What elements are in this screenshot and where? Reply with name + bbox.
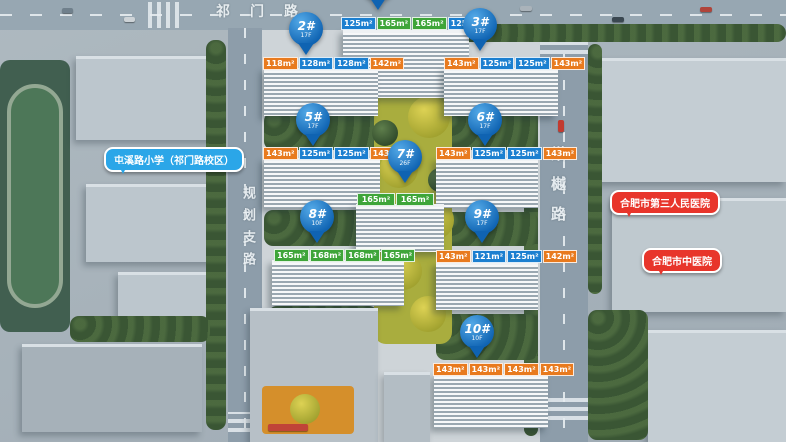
unit-area-chip: 128m² (334, 57, 369, 70)
unit-area-chip: 143m² (469, 363, 504, 376)
pin-tail-icon (477, 134, 493, 146)
unit-area-chip: 143m² (263, 147, 298, 160)
pin-head: 2# 17F (289, 12, 323, 46)
unit-chips-building-9: 143m² 121m² 125m² 142m² (436, 250, 577, 263)
pin-head: 9# 17F (465, 200, 499, 234)
school-label-bubble[interactable]: 屯溪路小学（祁门路校区） (104, 147, 244, 172)
tower-8 (272, 260, 404, 306)
unit-area-chip: 118m² (263, 57, 298, 70)
car (520, 6, 532, 11)
building-pin-10[interactable]: 10# 10F (460, 315, 494, 358)
school-building (86, 184, 226, 262)
aerial-map: 125m² 165m² 165m² 125m² 118m² 128m² 128m… (0, 0, 786, 442)
pin-label: 8# (309, 208, 326, 220)
building-pin-6[interactable]: 6# 17F (468, 103, 502, 146)
unit-area-chip: 125m² (507, 250, 542, 263)
building-pin-7[interactable]: 7# 26F (388, 140, 422, 183)
pin-tail-icon (305, 134, 321, 146)
pin-label: 6# (477, 111, 494, 123)
car (124, 17, 135, 22)
unit-area-chip: 125m² (299, 147, 334, 160)
unit-area-chip: 143m² (433, 363, 468, 376)
running-track (7, 84, 63, 308)
pin-tail-icon (370, 0, 386, 10)
pin-floors: 17F (479, 124, 490, 130)
tree-cluster (588, 310, 648, 440)
tower-7 (356, 204, 444, 252)
unit-area-chip: 165m² (357, 193, 395, 206)
yellow-tree (290, 394, 320, 424)
unit-chips-building-2: 118m² 128m² 128m² 142m² (263, 57, 404, 70)
pin-label: 10# (464, 323, 489, 335)
pin-label: 3# (472, 16, 489, 28)
unit-area-chip: 125m² (507, 147, 542, 160)
community-building (384, 372, 430, 442)
car (612, 17, 624, 22)
building-pin-3[interactable]: 3# 17F (463, 8, 497, 51)
pin-floors: 26F (399, 161, 410, 167)
unit-area-chip: 168m² (345, 249, 380, 262)
unit-area-chip: 143m² (436, 147, 471, 160)
pin-head: 8# 10F (300, 200, 334, 234)
unit-area-chip: 165m² (412, 17, 447, 30)
pin-head: 7# 26F (388, 140, 422, 174)
tree-line (70, 316, 210, 342)
unit-chips-building-10: 143m² 143m² 143m² 143m² (433, 363, 574, 376)
pin-head: 6# 17F (468, 103, 502, 137)
pin-head: 10# 10F (460, 315, 494, 349)
unit-area-chip: 125m² (480, 57, 515, 70)
unit-area-chip: 143m² (551, 57, 586, 70)
pin-tail-icon (397, 171, 413, 183)
unit-area-chip: 142m² (543, 250, 578, 263)
pin-floors: 10F (471, 336, 482, 342)
unit-area-chip: 165m² (381, 249, 416, 262)
building-pin-9[interactable]: 9# 17F (465, 200, 499, 243)
pin-label: 7# (397, 148, 414, 160)
car (62, 8, 73, 13)
car (700, 7, 712, 12)
pin-floors: 17F (307, 124, 318, 130)
unit-area-chip: 142m² (370, 57, 405, 70)
pin-tail-icon (474, 231, 490, 243)
pin-tail-icon (472, 39, 488, 51)
road-label-guihua: 规划支路 (238, 186, 257, 274)
unit-area-chip: 125m² (472, 147, 507, 160)
pin-label: 2# (298, 20, 315, 32)
pin-tail-icon (298, 43, 314, 55)
crosswalk (148, 2, 182, 28)
pin-tail-icon (309, 231, 325, 243)
unit-chips-building-8: 165m² 168m² 168m² 165m² (274, 249, 415, 262)
tree-line (206, 40, 226, 430)
unit-area-chip: 128m² (299, 57, 334, 70)
pin-tail-icon (469, 346, 485, 358)
unit-area-chip: 125m² (515, 57, 550, 70)
neighboring-building (22, 344, 202, 432)
tower-9 (436, 262, 538, 310)
unit-area-chip: 143m² (543, 147, 578, 160)
building-pin-8[interactable]: 8# 10F (300, 200, 334, 243)
pin-floors: 17F (474, 29, 485, 35)
building-pin-5[interactable]: 5# 17F (296, 103, 330, 146)
pin-label: 5# (305, 111, 322, 123)
pin-floors: 17F (300, 33, 311, 39)
unit-chips-building-3: 143m² 125m² 125m² 143m² (444, 57, 585, 70)
hospital-label-bubble-1[interactable]: 合肥市第三人民医院 (610, 190, 720, 215)
unit-area-chip: 168m² (310, 249, 345, 262)
pin-floors: 10F (311, 221, 322, 227)
unit-area-chip: 143m² (540, 363, 575, 376)
unit-area-chip: 121m² (472, 250, 507, 263)
unit-area-chip: 165m² (396, 193, 434, 206)
hospital-building (648, 330, 786, 442)
building-pin-1-partial[interactable] (361, 0, 395, 10)
playground-strip (268, 424, 308, 431)
unit-chips-building-7: 165m² 165m² (357, 193, 434, 206)
pin-label: 9# (474, 208, 491, 220)
unit-chips-building-5: 143m² 125m² 125m² 143m² (263, 147, 404, 160)
unit-area-chip: 125m² (341, 17, 376, 30)
unit-area-chip: 143m² (504, 363, 539, 376)
tree-line (460, 24, 786, 42)
unit-area-chip: 165m² (377, 17, 412, 30)
unit-area-chip: 143m² (444, 57, 479, 70)
tree-line (588, 44, 602, 294)
building-pin-2[interactable]: 2# 17F (289, 12, 323, 55)
pin-head: 5# 17F (296, 103, 330, 137)
unit-chips-building-6: 143m² 125m² 125m² 143m² (436, 147, 577, 160)
school-building (76, 56, 226, 140)
unit-area-chip: 125m² (334, 147, 369, 160)
unit-area-chip: 143m² (436, 250, 471, 263)
hospital-label-bubble-2[interactable]: 合肥市中医院 (642, 248, 722, 273)
pin-floors: 17F (476, 221, 487, 227)
unit-area-chip: 165m² (274, 249, 309, 262)
pin-head: 3# 17F (463, 8, 497, 42)
car (558, 120, 564, 132)
unit-chips-building-1: 125m² 165m² 165m² 125m² (341, 17, 482, 30)
tower-10 (434, 374, 548, 428)
hospital-building (598, 58, 786, 182)
